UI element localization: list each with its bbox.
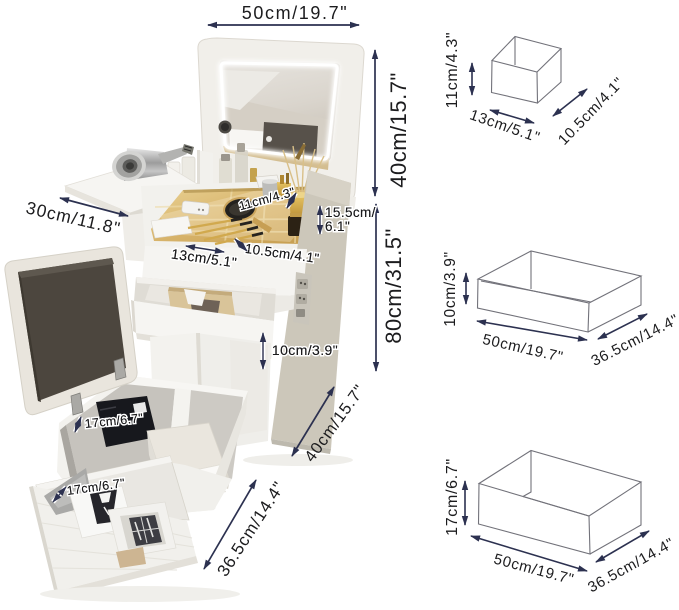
svg-text:10cm/3.9": 10cm/3.9"	[442, 251, 459, 327]
svg-text:80cm/31.5": 80cm/31.5"	[381, 228, 406, 344]
svg-text:17cm/6.7": 17cm/6.7"	[444, 458, 461, 536]
svg-text:40cm/15.7": 40cm/15.7"	[386, 72, 411, 188]
svg-text:10cm/3.9": 10cm/3.9"	[272, 342, 338, 358]
svg-text:6.1": 6.1"	[325, 219, 350, 234]
svg-text:15.5cm/: 15.5cm/	[325, 205, 376, 220]
svg-text:50cm/19.7": 50cm/19.7"	[242, 3, 348, 23]
svg-text:11cm/4.3": 11cm/4.3"	[444, 32, 461, 109]
